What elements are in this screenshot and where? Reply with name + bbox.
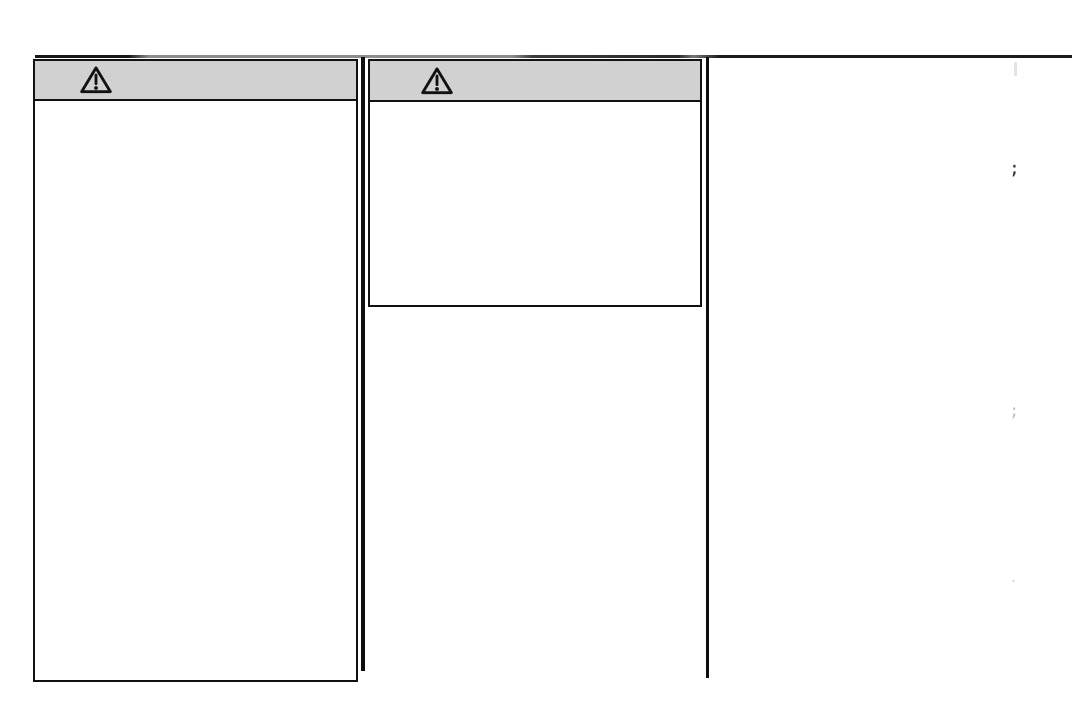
clipped-text-fragment: ; (1009, 160, 1020, 178)
clipped-text-fragment: ; (1009, 403, 1019, 420)
warning-triangle-icon (79, 65, 113, 95)
warning-box-left-header (35, 61, 356, 101)
scanned-page: ; ; . (0, 0, 1072, 714)
faint-edge-tick (1014, 62, 1017, 76)
column-divider-left (361, 57, 365, 671)
top-horizontal-rule (35, 55, 1072, 58)
warning-box-middle (368, 59, 702, 307)
clipped-text-fragment: . (1009, 570, 1018, 585)
column-divider-right (706, 57, 709, 678)
warning-triangle-icon (420, 66, 454, 96)
warning-box-middle-header (370, 61, 700, 102)
warning-box-left (33, 59, 358, 682)
